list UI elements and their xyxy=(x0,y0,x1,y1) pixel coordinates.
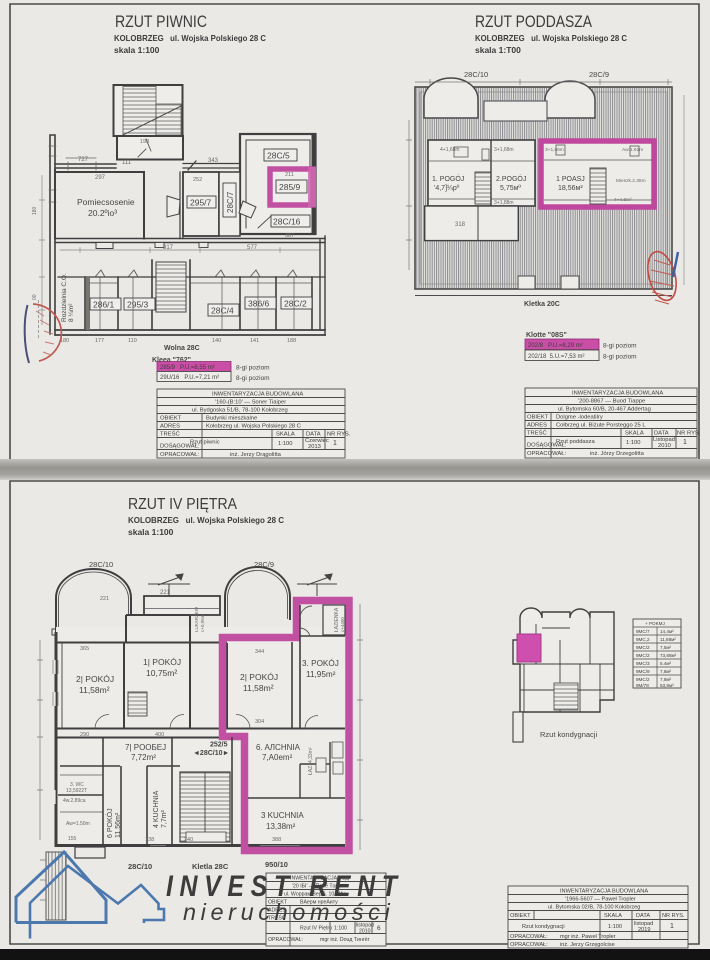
svg-text:1: 1 xyxy=(333,440,337,447)
svg-text:252: 252 xyxy=(193,177,202,183)
svg-text:c+0,95m: c+0,95m xyxy=(200,614,205,632)
svg-text:Kołobrzeg ul. Wojska Polskiego: Kołobrzeg ul. Wojska Polskiego 28 C xyxy=(206,424,301,430)
svg-text:ADRES: ADRES xyxy=(527,423,547,429)
svg-text:13,38m²: 13,38m² xyxy=(266,822,296,831)
svg-text:28C/16: 28C/16 xyxy=(273,217,301,227)
svg-text:RZUT IV PIĘTRA: RZUT IV PIĘTRA xyxy=(128,496,238,513)
svg-text:+ POKMJ: + POKMJ xyxy=(645,621,665,626)
svg-text:ŁAZ. 4,33m²: ŁAZ. 4,33m² xyxy=(308,747,314,775)
svg-text:4+1,68m: 4+1,68m xyxy=(440,147,460,153)
svg-text:365: 365 xyxy=(80,646,89,652)
svg-text:ul. Bytomska 02/B, 78-100 Koło: ul. Bytomska 02/B, 78-100 Kołobrzeg xyxy=(548,905,640,911)
svg-text:Rozdzielnia C.O.: Rozdzielnia C.O. xyxy=(61,273,68,322)
svg-text:1:100: 1:100 xyxy=(626,440,641,446)
svg-text:1:100: 1:100 xyxy=(278,441,293,447)
svg-text:Mieszk.2.38m: Mieszk.2.38m xyxy=(616,178,646,184)
svg-text:7,5м²: 7,5м² xyxy=(660,645,672,650)
svg-text:DATA: DATA xyxy=(654,431,669,437)
svg-text:28C/5: 28C/5 xyxy=(267,151,290,161)
svg-text:9МС/7: 9МС/7 xyxy=(636,629,650,634)
svg-text:240: 240 xyxy=(184,837,193,843)
svg-text:8-gi poziom: 8-gi poziom xyxy=(603,343,637,350)
svg-text:INWENTARYZACJA BUDOWLANA: INWENTARYZACJA BUDOWLANA xyxy=(560,889,648,895)
svg-text:7,7m²: 7,7m² xyxy=(161,809,168,828)
svg-text:28C/2: 28C/2 xyxy=(284,299,307,309)
svg-text:13,5922T: 13,5922T xyxy=(66,788,87,794)
svg-text:OPRACOWAŁ:: OPRACOWAŁ: xyxy=(268,937,303,943)
svg-text:6 POKÓJ: 6 POKÓJ xyxy=(105,808,114,838)
svg-text:285/9: 285/9 xyxy=(279,182,301,192)
svg-text:DATA: DATA xyxy=(306,432,321,438)
svg-text:8 ¼m²: 8 ¼m² xyxy=(68,303,75,322)
svg-text:11,58m²: 11,58m² xyxy=(243,683,274,693)
svg-text:SKALA: SKALA xyxy=(625,431,644,437)
svg-text:Wolna 28C: Wolna 28C xyxy=(164,345,200,352)
svg-text:28C/4: 28C/4 xyxy=(211,306,234,316)
svg-text:285/9 P.U.=8,55 m²: 285/9 P.U.=8,55 m² xyxy=(160,365,215,371)
svg-text:3+1,68m: 3+1,68m xyxy=(494,147,514,153)
svg-text:180: 180 xyxy=(32,206,38,215)
svg-text:73,88м²: 73,88м² xyxy=(660,653,677,658)
svg-text:OBIEKT: OBIEKT xyxy=(160,416,182,422)
svg-text:OPRACOWAŁ:: OPRACOWAŁ: xyxy=(510,934,548,940)
svg-text:c+4400: c+4400 xyxy=(340,617,345,632)
svg-text:Rzut IV Piętro: Rzut IV Piętro xyxy=(300,926,332,932)
svg-text:1 POAЅJ: 1 POAЅJ xyxy=(556,176,585,183)
svg-text:00: 00 xyxy=(32,294,38,300)
svg-text:155: 155 xyxy=(68,836,77,842)
svg-text:Aw:1.62m: Aw:1.62m xyxy=(622,147,643,153)
svg-text:28C/9: 28C/9 xyxy=(589,70,609,79)
svg-text:11,95m²: 11,95m² xyxy=(306,670,336,679)
svg-text:Cołbrzeg ul. Biżute Porsteggo: Cołbrzeg ul. Biżute Porsteggo 25 L xyxy=(556,423,646,429)
svg-text:OPRACOWAŁ:: OPRACOWAŁ: xyxy=(160,452,199,458)
svg-text:10,75m²: 10,75m² xyxy=(146,668,177,678)
svg-text:6: 6 xyxy=(377,925,381,932)
svg-text:KOLOBRZEG ul. Wojska Polskie: KOLOBRZEG ul. Wojska Polskiego 28 C xyxy=(128,515,284,525)
svg-text:202/8 P.U.=8,29 m²: 202/8 P.U.=8,29 m² xyxy=(528,343,583,349)
svg-text:221: 221 xyxy=(100,596,109,602)
svg-text:344: 344 xyxy=(255,649,264,655)
svg-text:mgr inż. Paweł Tropler: mgr inż. Paweł Tropler xyxy=(560,934,616,940)
svg-text:'4,7]¼рº: '4,7]¼рº xyxy=(434,185,460,192)
svg-text:DATA: DATA xyxy=(636,913,650,919)
svg-text:ul. Bydgoska 51/B, 78-100 Koło: ul. Bydgoska 51/B, 78-100 Kołobrzeg xyxy=(192,408,288,414)
svg-text:221: 221 xyxy=(160,590,171,596)
svg-text:28C/10: 28C/10 xyxy=(128,862,152,871)
svg-text:DOŚĄGOWAŁ:: DOŚĄGOWAŁ: xyxy=(527,441,567,449)
svg-text:Kletka 20C: Kletka 20C xyxy=(524,301,560,308)
svg-text:DOŚĄGOWAŁ:: DOŚĄGOWAŁ: xyxy=(160,442,200,450)
svg-text:9МС/2: 9МС/2 xyxy=(636,653,650,658)
svg-text:1. POGÓJ: 1. POGÓJ xyxy=(432,174,464,183)
svg-text:28C/10: 28C/10 xyxy=(89,560,113,569)
svg-text:OBIEKT: OBIEKT xyxy=(527,415,549,421)
svg-text:252/5: 252/5 xyxy=(210,742,228,749)
svg-text:297: 297 xyxy=(95,175,106,181)
svg-text:9МС,2: 9МС,2 xyxy=(636,637,650,642)
svg-text:4 KUCHNIA: 4 KUCHNIA xyxy=(153,790,160,828)
svg-text:Rzut kondygnacji: Rzut kondygnacji xyxy=(540,730,597,739)
svg-text:Rzut kondygnacji: Rzut kondygnacji xyxy=(522,924,565,930)
svg-text:OPRACOWAŁ:: OPRACOWAŁ: xyxy=(510,942,548,948)
svg-text:SKALA: SKALA xyxy=(604,913,622,919)
svg-text:1: 1 xyxy=(683,439,687,446)
svg-text:inż. Jerzy Grzęgolcise: inż. Jerzy Grzęgolcise xyxy=(560,942,615,948)
svg-text:RZUT PIWNIC: RZUT PIWNIC xyxy=(115,13,207,31)
svg-text:7,72m²: 7,72m² xyxy=(131,753,156,762)
svg-text:9МС/2: 9МС/2 xyxy=(636,645,650,650)
svg-text:295/7: 295/7 xyxy=(190,198,212,208)
svg-text:11,56m²: 11,56m² xyxy=(115,812,122,838)
svg-text:ul. Bytomska 60/B, 20-467 Adde: ul. Bytomska 60/B, 20-467 Addertag xyxy=(558,407,651,413)
svg-text:Aw=1.50m: Aw=1.50m xyxy=(66,821,90,827)
svg-text:141: 141 xyxy=(250,338,259,344)
svg-text:8-gi poziom: 8-gi poziom xyxy=(603,354,637,361)
svg-text:mgr inż. Douд Tингёr: mgr inż. Douд Tингёr xyxy=(320,937,370,943)
svg-text:RZUT PODDASZA: RZUT PODDASZA xyxy=(475,13,592,31)
svg-text:577: 577 xyxy=(247,245,258,251)
svg-text:Pomiecsosenie: Pomiecsosenie xyxy=(77,197,135,207)
svg-text:5.4м²: 5.4м² xyxy=(660,661,672,666)
svg-text:OBIEKT: OBIEKT xyxy=(510,913,531,919)
svg-text:7,A0еm²: 7,A0еm² xyxy=(262,753,293,762)
svg-text:TREŚĆ: TREŚĆ xyxy=(160,430,180,438)
svg-text:ŁUKARZEW: ŁUKARZEW xyxy=(194,606,199,632)
svg-text:7,8м²: 7,8м² xyxy=(660,677,672,682)
svg-text:inż. Jórzy Drzegolitta: inż. Jórzy Drzegolitta xyxy=(590,451,645,457)
svg-text:'160-(B:10' — Soner Tiaiper: '160-(B:10' — Soner Tiaiper xyxy=(215,400,286,406)
svg-text:140: 140 xyxy=(212,338,221,344)
svg-text:138: 138 xyxy=(145,837,154,843)
svg-text:318: 318 xyxy=(455,222,466,228)
svg-text:NR RYS.: NR RYS. xyxy=(662,913,685,919)
svg-text:202/18 5.U.=7,53 m²: 202/18 5.U.=7,53 m² xyxy=(528,354,585,360)
svg-text:2013: 2013 xyxy=(308,444,321,450)
svg-text:6. AЛСHNIA: 6. AЛСHNIA xyxy=(256,743,301,752)
svg-text:ADRES: ADRES xyxy=(160,424,180,430)
svg-text:400: 400 xyxy=(155,732,164,738)
svg-text:28C/7: 28C/7 xyxy=(226,191,235,213)
svg-text:'200-8867 — Buod Tiappe: '200-8867 — Buod Tiappe xyxy=(578,399,645,405)
svg-text:skala 1:T00: skala 1:T00 xyxy=(475,45,521,55)
svg-text:20.2ºio³: 20.2ºio³ xyxy=(88,208,117,218)
svg-text:Klotte "08S": Klotte "08S" xyxy=(526,332,567,339)
svg-text:Budynki mieszkalne: Budynki mieszkalne xyxy=(206,416,257,422)
svg-text:9МС/9: 9МС/9 xyxy=(636,669,650,674)
svg-text:3+1,68m: 3+1,68m xyxy=(545,147,564,153)
svg-text:INVEST RENT: INVEST RENT xyxy=(166,869,404,903)
svg-text:2019: 2019 xyxy=(638,927,650,933)
svg-text:304: 304 xyxy=(255,719,264,725)
svg-text:◄28C/10►: ◄28C/10► xyxy=(193,750,229,757)
svg-text:188: 188 xyxy=(287,338,296,344)
svg-text:INWENTARYZACJA BUDOWLANA: INWENTARYZACJA BUDOWLANA xyxy=(212,392,303,398)
svg-text:950/10: 950/10 xyxy=(265,860,288,869)
svg-text:1:100: 1:100 xyxy=(608,924,622,930)
svg-text:386/6: 386/6 xyxy=(248,299,270,309)
svg-text:14,4м²: 14,4м² xyxy=(660,629,674,634)
svg-text:1:100: 1:100 xyxy=(334,926,347,932)
svg-text:NR RYS.: NR RYS. xyxy=(327,432,351,438)
svg-text:INWENTARYZACJA BUDOWLANA: INWENTARYZACJA BUDOWLANA xyxy=(572,391,663,397)
svg-text:290: 290 xyxy=(80,732,89,738)
svg-text:2| POKÓJ: 2| POKÓJ xyxy=(240,672,278,682)
svg-text:9МС/2: 9МС/2 xyxy=(636,677,650,682)
svg-text:2010: 2010 xyxy=(359,929,371,935)
svg-text:2.POGÓJ: 2.POGÓJ xyxy=(496,174,526,183)
svg-text:388: 388 xyxy=(272,837,281,843)
svg-text:2010: 2010 xyxy=(658,443,671,449)
svg-text:286/1: 286/1 xyxy=(93,300,115,310)
svg-text:727: 727 xyxy=(78,157,89,163)
svg-text:Dolgme -lodeatilry: Dolgme -lodeatilry xyxy=(556,415,603,421)
svg-text:4w.2,89ca: 4w.2,89ca xyxy=(63,798,86,804)
svg-text:11,88м²: 11,88м² xyxy=(660,637,676,642)
svg-text:inż. Jerzy Drągolitta: inż. Jerzy Drągolitta xyxy=(230,452,282,458)
svg-text:1| POKÓJ: 1| POKÓJ xyxy=(143,657,181,667)
svg-text:3. POKÓJ: 3. POKÓJ xyxy=(302,658,339,668)
svg-text:8-gi poziom: 8-gi poziom xyxy=(236,375,270,382)
svg-text:'1966-5607 — Paweł Tropler: '1966-5607 — Paweł Tropler xyxy=(565,897,636,903)
svg-text:KOLOBRZEG ul. Wojska Polskie: KOLOBRZEG ul. Wojska Polskiego 28 C xyxy=(475,33,627,43)
svg-text:53,9м²: 53,9м² xyxy=(660,683,674,688)
svg-text:295/3: 295/3 xyxy=(127,300,149,310)
svg-text:7,8м²: 7,8м² xyxy=(660,669,672,674)
svg-text:2| POKÓJ: 2| POKÓJ xyxy=(76,674,114,684)
svg-text:9М/78: 9М/78 xyxy=(636,683,649,688)
svg-text:7| POОБЕJ: 7| POОБЕJ xyxy=(125,743,166,752)
svg-text:NR RYS.: NR RYS. xyxy=(677,431,701,437)
svg-text:3 KUCHNIA: 3 KUCHNIA xyxy=(261,811,304,820)
svg-text:3+1,88m: 3+1,88m xyxy=(494,200,514,206)
svg-text:29U/16 P.U.=7,21 m²: 29U/16 P.U.=7,21 m² xyxy=(160,375,219,381)
svg-text:177: 177 xyxy=(95,338,104,344)
svg-text:nieruchomości: nieruchomości xyxy=(183,899,394,925)
svg-text:SKALA: SKALA xyxy=(276,432,295,438)
svg-text:5,75мº: 5,75мº xyxy=(500,185,521,192)
svg-text:111: 111 xyxy=(122,160,132,166)
svg-text:4+4.6m²: 4+4.6m² xyxy=(614,197,632,203)
svg-text:211: 211 xyxy=(285,172,294,178)
svg-text:110: 110 xyxy=(128,338,137,344)
svg-text:28C/10: 28C/10 xyxy=(464,70,488,79)
svg-text:317: 317 xyxy=(163,245,174,251)
svg-text:OPRACOWAŁ:: OPRACOWAŁ: xyxy=(527,451,566,457)
svg-text:KOLOBRZEG ul. Wojska Polskie: KOLOBRZEG ul. Wojska Polskiego 28 C xyxy=(114,33,266,43)
svg-text:11,58m²: 11,58m² xyxy=(79,685,110,695)
svg-text:TREŚĆ: TREŚĆ xyxy=(527,429,547,437)
svg-text:skala 1:100: skala 1:100 xyxy=(128,527,174,537)
svg-text:18,56м²: 18,56м² xyxy=(558,185,583,192)
svg-text:8-gi poziom: 8-gi poziom xyxy=(236,365,270,372)
svg-text:1: 1 xyxy=(670,923,674,930)
svg-text:198: 198 xyxy=(140,139,149,145)
svg-text:9МС/3: 9МС/3 xyxy=(636,661,650,666)
svg-text:skala 1:100: skala 1:100 xyxy=(114,45,160,55)
